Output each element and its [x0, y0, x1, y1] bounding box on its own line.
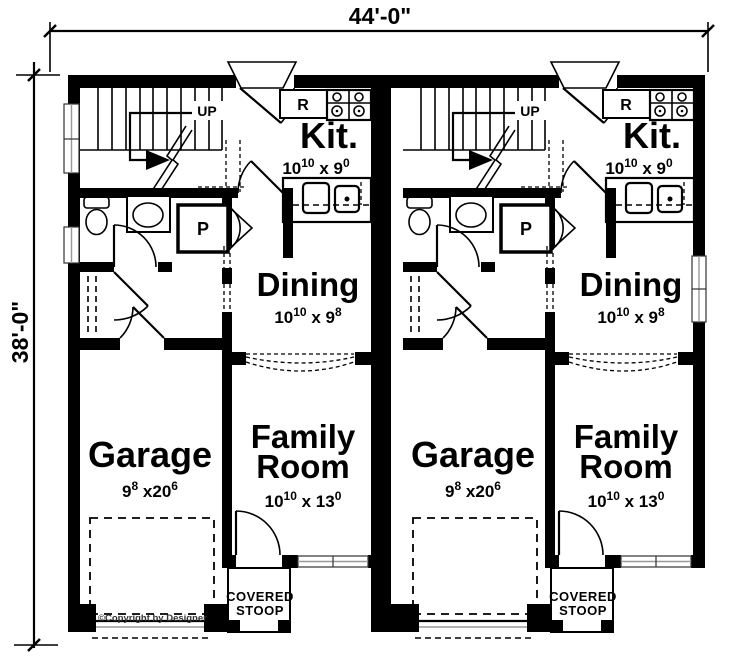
floor-plan-drawing: UP R P Kit. 1010 x 90 Dining 1010 x 98 G… [0, 0, 736, 664]
copyright-note: ©Copyright by Designer [98, 613, 207, 624]
height-dimension-label: 38'-0" [7, 301, 33, 363]
floor-plan: UP R P Kit. 1010 x 90 Dining 1010 x 98 G… [0, 0, 736, 664]
dimension-left: 38'-0" [7, 62, 60, 651]
party-wall [371, 75, 391, 632]
right-wall-window [692, 256, 706, 322]
unit-left [68, 62, 371, 638]
width-dimension-label: 44'-0" [349, 3, 411, 29]
unit-right [391, 62, 694, 638]
